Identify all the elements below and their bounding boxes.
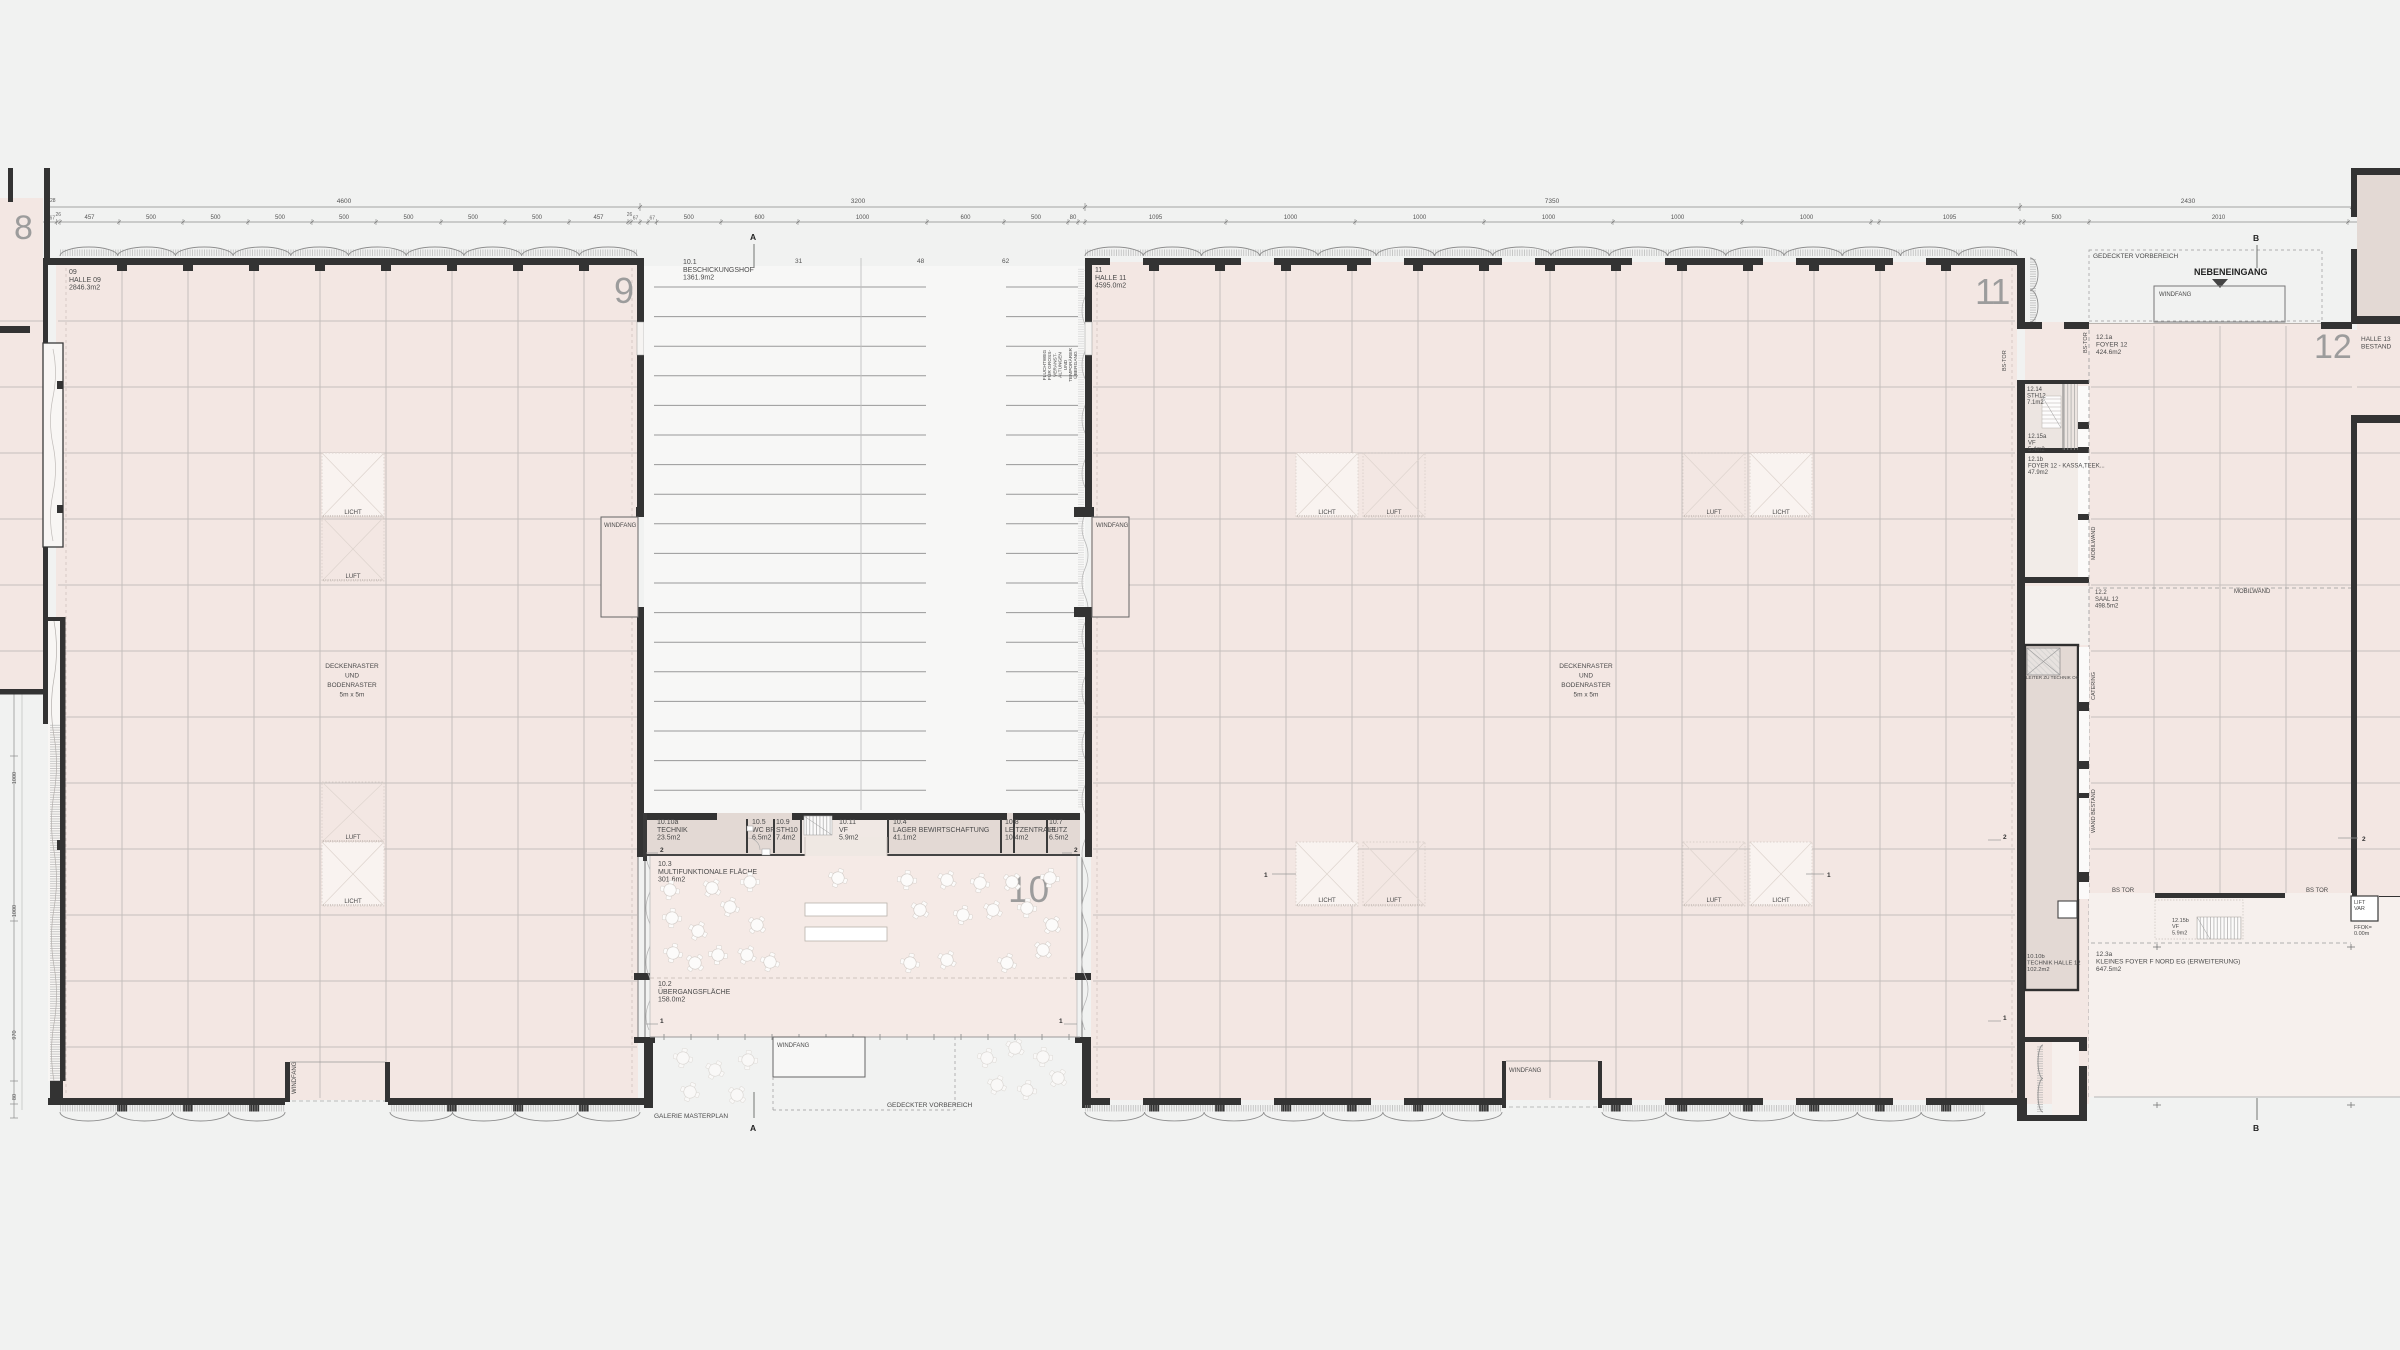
svg-text:LICHT: LICHT (1318, 510, 1336, 516)
svg-text:28: 28 (50, 198, 56, 204)
svg-text:1: 1 (1059, 1018, 1063, 1025)
svg-text:BS-TOR: BS-TOR (2002, 350, 2008, 371)
svg-text:500: 500 (468, 215, 479, 221)
svg-text:WINDFANG: WINDFANG (2159, 292, 2192, 298)
svg-text:62: 62 (1002, 258, 1010, 265)
svg-text:A: A (750, 232, 756, 242)
svg-text:9: 9 (614, 270, 634, 311)
svg-text:31: 31 (795, 258, 803, 265)
svg-text:2430: 2430 (2181, 198, 2196, 205)
svg-text:500: 500 (146, 215, 157, 221)
svg-text:500: 500 (339, 215, 350, 221)
svg-text:WINDFANG: WINDFANG (604, 523, 637, 529)
svg-text:LICHT: LICHT (1772, 510, 1790, 516)
svg-text:500: 500 (684, 215, 695, 221)
svg-text:26: 26 (627, 212, 633, 218)
svg-text:500: 500 (210, 215, 221, 221)
svg-text:500: 500 (532, 215, 543, 221)
svg-text:80: 80 (12, 1094, 18, 1100)
svg-text:11: 11 (1975, 271, 2009, 312)
svg-text:LICHT: LICHT (1772, 898, 1790, 904)
svg-text:4600: 4600 (337, 198, 352, 205)
svg-text:600: 600 (754, 215, 765, 221)
svg-text:B: B (2253, 233, 2259, 243)
svg-text:1000: 1000 (1800, 215, 1814, 221)
svg-text:1000: 1000 (1284, 215, 1298, 221)
svg-text:A: A (750, 1123, 756, 1133)
svg-text:457: 457 (84, 215, 95, 221)
svg-text:LUFT: LUFT (346, 835, 361, 841)
svg-text:1: 1 (1827, 872, 1831, 879)
svg-text:2: 2 (2362, 836, 2366, 843)
svg-text:1000: 1000 (856, 215, 870, 221)
svg-text:1000: 1000 (12, 772, 18, 784)
svg-text:500: 500 (2051, 215, 2062, 221)
svg-text:2: 2 (660, 847, 664, 854)
svg-text:WINDFANG: WINDFANG (1509, 1068, 1542, 1074)
svg-text:67: 67 (650, 216, 656, 222)
svg-text:LICHT: LICHT (344, 510, 362, 516)
svg-text:NEBENEINGANG: NEBENEINGANG (2194, 267, 2268, 277)
svg-text:67: 67 (50, 216, 56, 222)
svg-text:BS TOR: BS TOR (2306, 888, 2329, 894)
svg-text:80: 80 (1070, 215, 1077, 221)
svg-text:1: 1 (1264, 872, 1268, 879)
svg-text:FFOK=0.00m: FFOK=0.00m (2354, 925, 2372, 937)
svg-text:1000: 1000 (1542, 215, 1556, 221)
svg-text:LUFT: LUFT (1387, 898, 1402, 904)
svg-text:1095: 1095 (1943, 215, 1957, 221)
svg-text:BS-TOR: BS-TOR (2083, 332, 2089, 353)
svg-text:FLUCHTWEGFÜR GROSS-VERANST-ALT: FLUCHTWEGFÜR GROSS-VERANST-ALTUNGENUNDTE… (1042, 348, 1079, 382)
svg-text:26: 26 (56, 212, 62, 218)
svg-text:1: 1 (660, 1018, 664, 1025)
svg-text:500: 500 (275, 215, 286, 221)
svg-text:600: 600 (960, 215, 971, 221)
svg-text:BS TOR: BS TOR (2112, 888, 2135, 894)
svg-text:2: 2 (2003, 834, 2007, 841)
svg-text:LUFT: LUFT (1707, 898, 1722, 904)
svg-text:WAND BESTAND: WAND BESTAND (2091, 789, 2097, 833)
svg-text:LIFTVAR: LIFTVAR (2354, 900, 2366, 912)
svg-text:MOBILWAND: MOBILWAND (2091, 527, 2097, 560)
svg-text:970: 970 (12, 1030, 18, 1039)
svg-text:12: 12 (2314, 328, 2352, 366)
svg-text:HALLE 13BESTAND: HALLE 13BESTAND (2361, 336, 2392, 350)
svg-text:3200: 3200 (851, 198, 866, 205)
svg-text:500: 500 (1031, 215, 1042, 221)
svg-text:1000: 1000 (1671, 215, 1685, 221)
svg-text:WINDFANG: WINDFANG (777, 1043, 810, 1049)
svg-text:48: 48 (917, 258, 925, 265)
svg-text:8: 8 (14, 209, 33, 247)
svg-text:2010: 2010 (2212, 215, 2226, 221)
svg-text:GEDECKTER VORBEREICH: GEDECKTER VORBEREICH (887, 1102, 973, 1109)
svg-text:WINDFANG: WINDFANG (292, 1061, 298, 1094)
svg-text:LICHT: LICHT (1318, 898, 1336, 904)
svg-text:1000: 1000 (1413, 215, 1427, 221)
svg-text:67: 67 (633, 216, 639, 222)
svg-text:MOBILWAND: MOBILWAND (2234, 589, 2271, 595)
svg-text:7350: 7350 (1545, 198, 1560, 205)
svg-text:2: 2 (1074, 847, 1078, 854)
svg-text:B: B (2253, 1123, 2259, 1133)
svg-text:LUFT: LUFT (1387, 510, 1402, 516)
svg-text:1095: 1095 (1149, 215, 1163, 221)
svg-text:LICHT: LICHT (344, 899, 362, 905)
svg-text:457: 457 (593, 215, 604, 221)
svg-text:LUFT: LUFT (346, 574, 361, 580)
svg-text:CATERING: CATERING (2091, 672, 2097, 700)
svg-text:GEDECKTER VORBEREICH: GEDECKTER VORBEREICH (2093, 253, 2179, 260)
svg-text:GALERIE MASTERPLAN: GALERIE MASTERPLAN (654, 1113, 728, 1120)
svg-text:1000: 1000 (12, 905, 18, 917)
svg-text:500: 500 (403, 215, 414, 221)
svg-text:LUFT: LUFT (1707, 510, 1722, 516)
svg-text:1: 1 (2003, 1015, 2007, 1022)
svg-text:LEITER ZU TECHNIK OG: LEITER ZU TECHNIK OG (2026, 675, 2080, 680)
svg-text:WINDFANG: WINDFANG (1096, 523, 1129, 529)
